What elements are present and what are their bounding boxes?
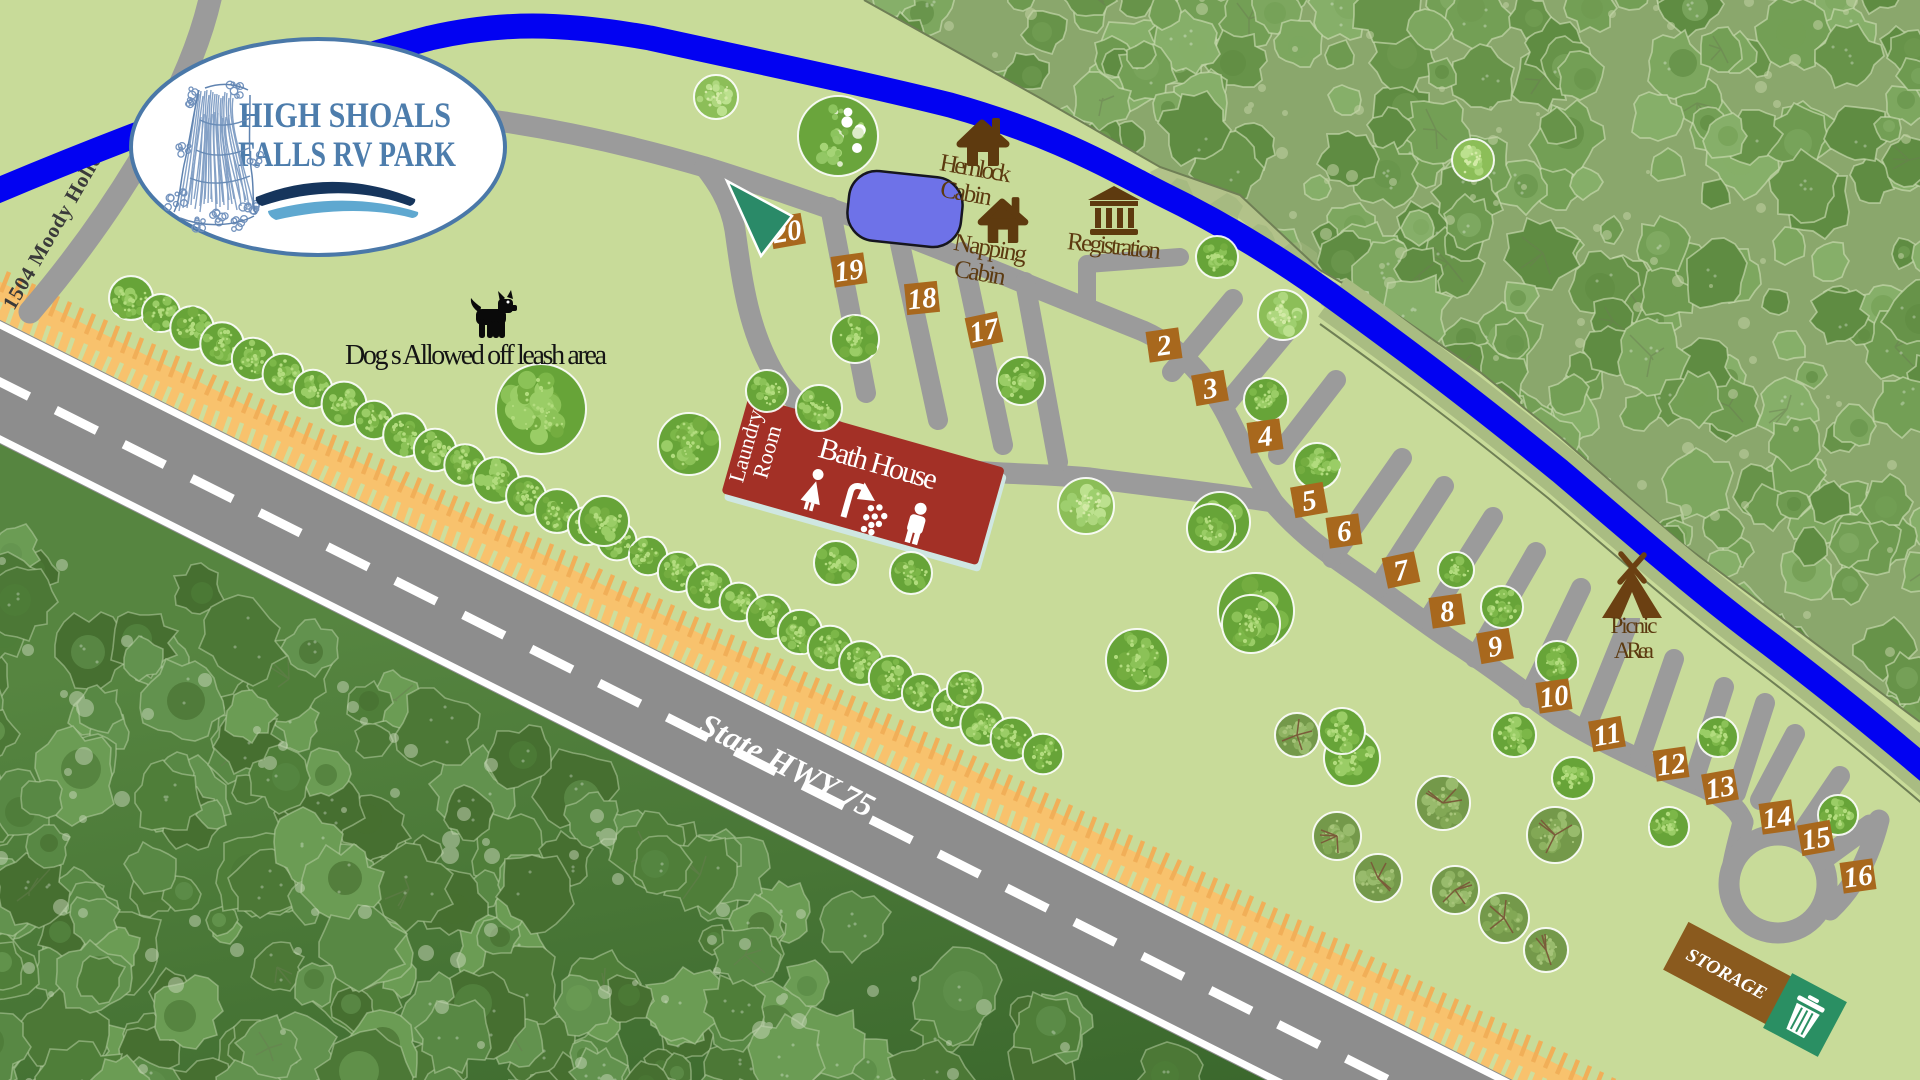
svg-text:16: 16 [1842,859,1876,895]
svg-text:FALLS RV PARK: FALLS RV PARK [238,134,456,174]
svg-text:HIGH SHOALS: HIGH SHOALS [239,95,451,135]
svg-text:Dog s Allowed off leash area: Dog s Allowed off leash area [345,340,608,371]
svg-text:Picnic: Picnic [1611,613,1658,638]
svg-text:13: 13 [1703,770,1737,807]
svg-text:14: 14 [1761,800,1794,836]
svg-text:10: 10 [1538,679,1571,715]
svg-text:15: 15 [1799,821,1833,858]
svg-text:11: 11 [1591,717,1624,753]
svg-text:12: 12 [1655,747,1688,783]
svg-text:18: 18 [906,282,939,317]
svg-text:ARea: ARea [1614,638,1654,663]
svg-text:19: 19 [833,253,866,289]
